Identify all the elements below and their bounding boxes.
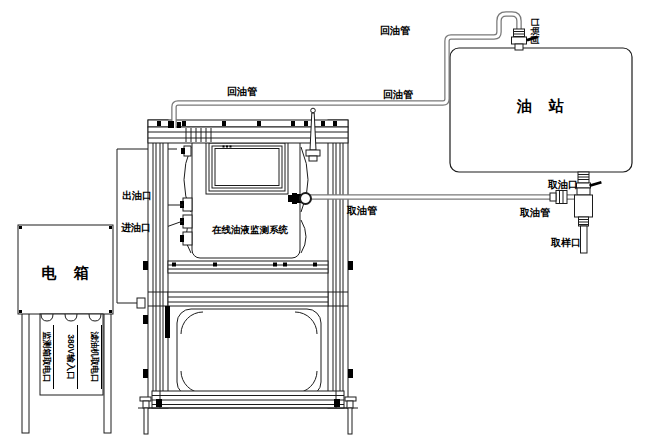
oil-station-label: 油 站 (450, 98, 632, 113)
take-port-label: 取油口 (548, 180, 578, 190)
diagram-canvas: 回油管 回油管 回油管 回油口 油 站 取油口 取油管 取油管 取样口 出油口 … (0, 0, 650, 444)
oil-inlet-label: 进油口 (121, 223, 151, 233)
system-name-label: 在线油液监测系统 (212, 225, 288, 235)
return-pipe-label-2: 回油管 (383, 90, 413, 100)
take-pipe-label-2: 取油管 (520, 208, 550, 218)
cabinet-drawing (152, 132, 308, 258)
return-port-label: 回油口 (530, 13, 542, 49)
take-pipe-label-1: 取油管 (347, 206, 377, 216)
return-pipe-label-1: 回油管 (227, 87, 257, 97)
return-pipe-label-3: 回油管 (380, 26, 410, 36)
oil-outlet-label: 出油口 (122, 191, 152, 201)
sample-port-label: 取样口 (551, 238, 581, 248)
power-port-label-380v: 380V输入口 (64, 325, 78, 389)
electric-box-label: 电 箱 (18, 265, 113, 280)
power-port-label-filter: 滤油机取电口 (88, 325, 102, 389)
power-port-label-monitor: 监测箱取电口 (40, 325, 54, 389)
